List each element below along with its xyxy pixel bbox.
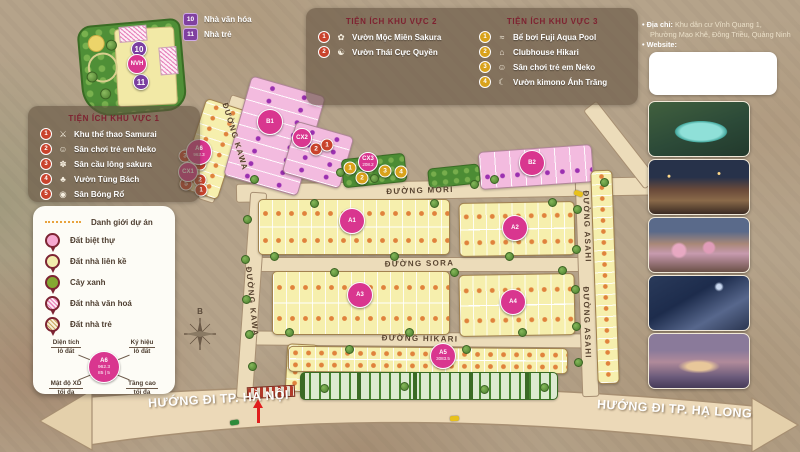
map-legend: Danh giới dự án Đất biệt thự Đất nhà liê… <box>33 206 175 394</box>
kv3-num: 1 <box>479 31 491 43</box>
block-a5 <box>288 346 568 374</box>
kindergarten-pin-icon <box>45 317 60 332</box>
block-label-NVH: NVH <box>127 54 147 74</box>
site-plan-poster: B <box>0 0 800 452</box>
arrow-right-icon <box>752 398 798 452</box>
block-label-B2: B2 <box>519 150 545 176</box>
tree-icon <box>250 175 259 184</box>
boundary-line-icon <box>45 221 81 223</box>
tree-icon <box>462 345 471 354</box>
kv3-label: Sân chơi trẻ em Neko <box>513 63 595 72</box>
tree-icon <box>245 330 254 339</box>
website-placeholder-box <box>649 52 777 95</box>
arrow-left-icon <box>40 390 92 450</box>
compass-label: B <box>197 307 203 316</box>
legend-num-11: 11 <box>183 28 198 41</box>
address-line-2: Phường Mạo Khê, Đông Triều, Quảng Ninh <box>642 30 798 40</box>
car-yellow <box>450 416 459 422</box>
photo-clubhouse-evening <box>648 159 750 215</box>
villa-pin-icon <box>45 233 60 248</box>
tree-icon <box>370 174 379 183</box>
kv3-label: Clubhouse Hikari <box>513 48 579 57</box>
tree-icon <box>248 362 257 371</box>
kv1-num: 5 <box>40 188 52 200</box>
tree-icon <box>572 322 581 331</box>
kv2-title: TIỆN ÍCH KHU VỰC 2 <box>318 17 465 26</box>
tree-icon <box>400 382 409 391</box>
tree-icon <box>572 245 581 254</box>
legend-label: Nhà trẻ <box>204 30 232 39</box>
block-label-A2: A2 <box>502 215 528 241</box>
tree-icon <box>390 252 399 261</box>
tree-icon <box>480 385 489 394</box>
diagram-code-label: Ký hiệulô đất <box>117 339 167 356</box>
tree-icon <box>285 328 294 337</box>
project-info: Địa chỉ: Khu dân cư Vĩnh Quang 1, Phường… <box>642 20 798 50</box>
kv3-title: TIỆN ÍCH KHU VỰC 3 <box>479 17 626 26</box>
tree-icon <box>573 205 582 214</box>
kv3-num: 4 <box>479 76 491 88</box>
kv1-label: Vườn Tùng Bách <box>74 175 139 184</box>
website-line: Website: <box>642 40 798 50</box>
block-label-B1: B1 <box>257 109 283 135</box>
legend-culture-house: Đất nhà văn hoá <box>70 299 132 308</box>
tree-icon <box>470 180 479 189</box>
photo-pool-aerial <box>648 101 750 157</box>
kv2-label: Vườn Mộc Miên Sakura <box>352 33 441 42</box>
tree-icon <box>518 328 527 337</box>
pool-icon: ≈ <box>496 33 508 42</box>
kv1-label: Sân cầu lông sakura <box>74 160 152 169</box>
badminton-icon: ✽ <box>57 160 69 169</box>
block-label-CX3: CX3208.2 <box>358 152 378 172</box>
tree-icon <box>490 175 499 184</box>
legend-label: Nhà văn hóa <box>204 15 252 24</box>
block-label-A3: A3 <box>347 282 373 308</box>
kv1-label: Sân Bóng Rổ <box>74 190 124 199</box>
clubhouse-icon: ⌂ <box>496 48 508 57</box>
compass-icon: B <box>184 307 216 350</box>
townhouse-pin-icon <box>45 254 60 269</box>
photo-sakura-street <box>648 217 750 273</box>
roof-hatch <box>118 25 147 43</box>
block-label-A5: A53083.5 <box>430 343 456 369</box>
tree-icon <box>270 252 279 261</box>
block-label-A1: A1 <box>339 208 365 234</box>
tree-icon <box>310 199 319 208</box>
tree-icon <box>242 295 251 304</box>
kv1-num: 1 <box>40 128 52 140</box>
kv2-label: Vườn Thái Cực Quyền <box>352 48 438 57</box>
amenities-panel-1: TIỆN ÍCH KHU VỰC 1 1⚔Khu thể thao Samura… <box>28 106 200 202</box>
kv2-num: 1 <box>318 31 330 43</box>
amenities-kv3: TIỆN ÍCH KHU VỰC 3 1≈Bể bơi Fuji Aqua Po… <box>479 17 626 96</box>
tree-icon <box>600 178 609 187</box>
kv1-num: 4 <box>40 173 52 185</box>
basketball-icon: ◉ <box>57 190 69 199</box>
tree-icon <box>405 328 414 337</box>
playground-icon: ☺ <box>57 145 69 154</box>
legend-kindergarten: Đất nhà trẻ <box>70 320 112 329</box>
kv3-num: 3 <box>479 61 491 73</box>
tree-icon <box>571 285 580 294</box>
map-marker-kv3-4: 4 <box>395 166 408 179</box>
kv2-num: 2 <box>318 46 330 58</box>
map-marker-park-11: 11 <box>133 74 149 90</box>
tree-icon <box>540 383 549 392</box>
culture-house-pin-icon <box>45 296 60 311</box>
lot-code-circle: A6 962.3 85 | 5 <box>88 351 120 383</box>
tree-icon <box>505 252 514 261</box>
tree-icon <box>345 345 354 354</box>
greenery-pin-icon <box>45 275 60 290</box>
kv1-num: 2 <box>40 143 52 155</box>
map-marker-kv3-1: 1 <box>344 162 357 175</box>
tree-icon <box>243 215 252 224</box>
tree-icon <box>320 384 329 393</box>
diagram-density-label: Mật độ XDtối đa <box>41 380 91 397</box>
legend-greenery: Cây xanh <box>70 278 106 287</box>
roof-hatch <box>158 46 178 75</box>
legend-villa: Đất biệt thự <box>70 236 115 245</box>
playground-icon: ☺ <box>496 63 508 72</box>
block-label-A4: A4 <box>500 289 526 315</box>
moon-icon: ☾ <box>496 78 508 87</box>
legend-num-10: 10 <box>183 13 198 26</box>
tree-icon <box>430 199 439 208</box>
kv3-label: Vườn kimono Ánh Trăng <box>513 78 607 87</box>
tree-icon <box>330 268 339 277</box>
block-label-CX2: CX2 <box>292 128 312 148</box>
tree-icon <box>450 268 459 277</box>
diagram-floors-label: Tầng caotối đa <box>117 380 167 397</box>
legend-townhouse: Đất nhà liên kề <box>70 257 126 266</box>
kv1-title: TIỆN ÍCH KHU VỰC 1 <box>40 114 188 123</box>
tree-icon <box>574 358 583 367</box>
boundary-label: Danh giới dự án <box>91 218 153 227</box>
mini-legend: 10Nhà văn hóa 11Nhà trẻ <box>183 11 252 43</box>
kv1-num: 3 <box>40 158 52 170</box>
lot-code-diagram: Diện tíchlô đất Ký hiệulô đất Mật độ XDt… <box>45 339 163 395</box>
address-line: Địa chỉ: Khu dân cư Vĩnh Quang 1, <box>642 20 798 30</box>
tree-icon <box>548 198 557 207</box>
kv3-num: 2 <box>479 46 491 58</box>
tree-icon <box>100 88 112 100</box>
sakura-icon: ✿ <box>335 33 347 42</box>
tree-icon <box>558 266 567 275</box>
map-marker-kv3-3: 3 <box>379 165 392 178</box>
photo-dusk-aerial <box>648 333 750 389</box>
map-marker-kv2-1: 1 <box>321 139 334 152</box>
kv1-label: Sân chơi trẻ em Neko <box>74 145 156 154</box>
sports-icon: ⚔ <box>57 130 69 139</box>
map-marker-kv3-2: 2 <box>356 172 369 185</box>
amenities-kv2: TIỆN ÍCH KHU VỰC 2 1✿Vườn Mộc Miên Sakur… <box>318 17 465 96</box>
diagram-area-label: Diện tíchlô đất <box>41 339 91 356</box>
tree-icon <box>241 255 250 264</box>
kv1-label: Khu thể thao Samurai <box>74 130 157 139</box>
parking-green-strip <box>300 372 558 400</box>
kv3-label: Bể bơi Fuji Aqua Pool <box>513 33 596 42</box>
park-lawn-circle <box>87 34 105 52</box>
pine-icon: ♣ <box>57 175 69 184</box>
taichi-icon: ☯ <box>335 48 347 57</box>
photo-night-aerial <box>648 275 750 331</box>
amenities-panel-2-3: TIỆN ÍCH KHU VỰC 2 1✿Vườn Mộc Miên Sakur… <box>306 8 638 105</box>
